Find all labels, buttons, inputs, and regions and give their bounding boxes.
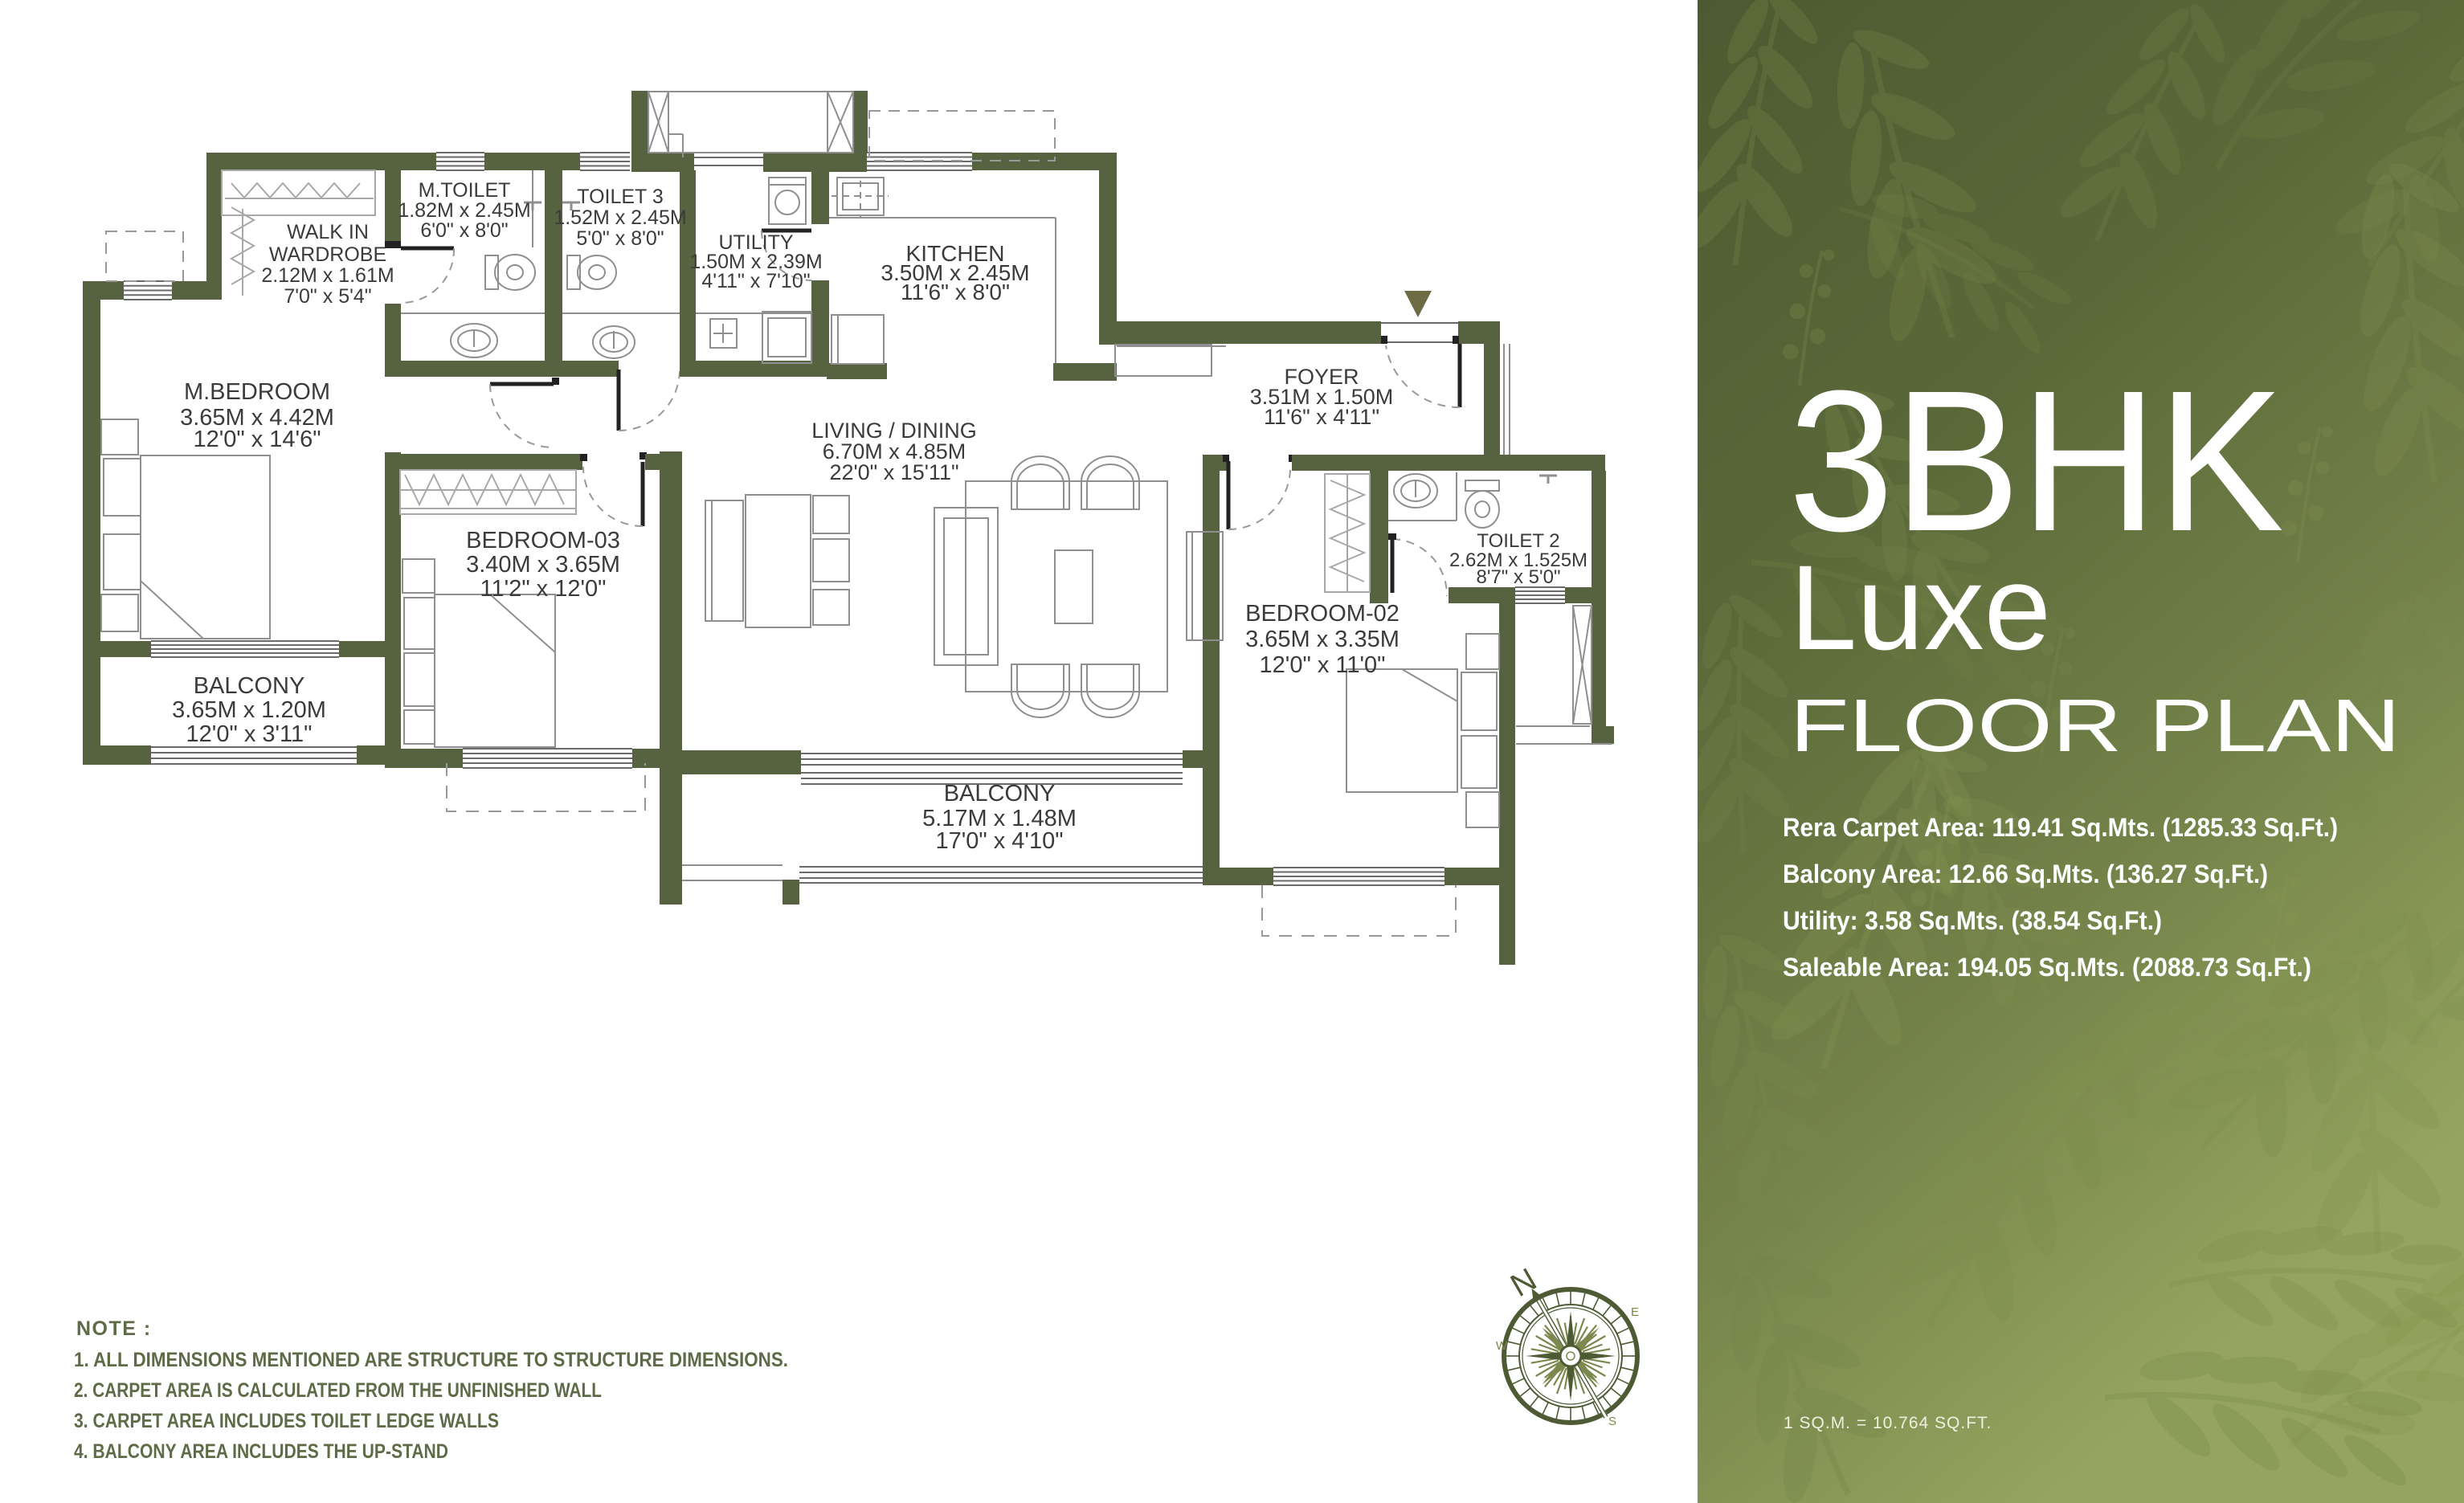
svg-text:NOTE :: NOTE : [76, 1317, 152, 1340]
svg-text:8'7" x 5'0": 8'7" x 5'0" [1477, 566, 1561, 588]
svg-text:WARDROBE: WARDROBE [269, 243, 386, 266]
svg-text:TOILET 2: TOILET 2 [1477, 530, 1559, 552]
svg-text:M.BEDROOM: M.BEDROOM [184, 379, 330, 405]
svg-text:17'0" x 4'10": 17'0" x 4'10" [935, 828, 1063, 854]
svg-text:WALK IN: WALK IN [287, 221, 369, 243]
svg-text:FLOOR PLAN: FLOOR PLAN [1790, 684, 2401, 767]
svg-text:12'0" x 14'6": 12'0" x 14'6" [193, 427, 321, 452]
svg-text:11'6" x 4'11": 11'6" x 4'11" [1264, 405, 1379, 429]
svg-text:TOILET 3: TOILET 3 [577, 186, 663, 208]
svg-text:3.65M x 3.35M: 3.65M x 3.35M [1245, 627, 1400, 652]
svg-text:M.TOILET: M.TOILET [419, 179, 511, 202]
svg-text:E: E [1631, 1305, 1639, 1319]
svg-text:W: W [1496, 1339, 1508, 1353]
svg-text:12'0" x 3'11": 12'0" x 3'11" [186, 721, 313, 747]
svg-text:3.65M x 1.20M: 3.65M x 1.20M [172, 697, 326, 723]
svg-text:1.52M x 2.45M: 1.52M x 2.45M [554, 206, 686, 229]
svg-text:Balcony Area: 12.66 Sq.Mts. (1: Balcony Area: 12.66 Sq.Mts. (136.27 Sq.F… [1783, 860, 2268, 888]
svg-text:1 SQ.M. = 10.764 SQ.FT.: 1 SQ.M. = 10.764 SQ.FT. [1784, 1414, 1992, 1432]
svg-text:3. CARPET AREA INCLUDES TOILET: 3. CARPET AREA INCLUDES TOILET LEDGE WAL… [74, 1410, 499, 1432]
svg-text:Utility: 3.58 Sq.Mts. (38.54 S: Utility: 3.58 Sq.Mts. (38.54 Sq.Ft.) [1783, 906, 2162, 935]
svg-text:1.82M x 2.45M: 1.82M x 2.45M [398, 199, 530, 222]
svg-text:6'0" x 8'0": 6'0" x 8'0" [420, 219, 508, 242]
svg-text:4'11" x 7'10": 4'11" x 7'10" [701, 270, 810, 292]
svg-text:1. ALL DIMENSIONS MENTIONED AR: 1. ALL DIMENSIONS MENTIONED ARE STRUCTUR… [74, 1349, 788, 1371]
svg-text:4. BALCONY AREA INCLUDES THE U: 4. BALCONY AREA INCLUDES THE UP-STAND [74, 1440, 448, 1463]
svg-text:S: S [1608, 1415, 1616, 1428]
svg-text:11'2" x 12'0": 11'2" x 12'0" [480, 576, 607, 602]
svg-text:11'6" x 8'0": 11'6" x 8'0" [901, 280, 1010, 304]
svg-text:2. CARPET AREA IS CALCULATED F: 2. CARPET AREA IS CALCULATED FROM THE UN… [74, 1379, 602, 1402]
svg-text:Rera Carpet Area: 119.41 Sq.Mt: Rera Carpet Area: 119.41 Sq.Mts. (1285.3… [1783, 813, 2338, 842]
svg-text:BEDROOM-02: BEDROOM-02 [1245, 601, 1400, 627]
svg-text:2.12M x 1.61M: 2.12M x 1.61M [261, 264, 394, 287]
svg-text:BALCONY: BALCONY [944, 781, 1056, 807]
svg-text:12'0" x 11'0": 12'0" x 11'0" [1260, 652, 1386, 678]
svg-text:22'0" x 15'11": 22'0" x 15'11" [829, 460, 958, 484]
svg-text:3.40M x 3.65M: 3.40M x 3.65M [466, 552, 620, 578]
svg-text:BALCONY: BALCONY [194, 673, 305, 699]
svg-text:Saleable Area: 194.05 Sq.Mts.: Saleable Area: 194.05 Sq.Mts. (2088.73 S… [1783, 953, 2311, 982]
svg-text:5'0" x 8'0": 5'0" x 8'0" [576, 227, 664, 250]
svg-text:BEDROOM-03: BEDROOM-03 [466, 528, 620, 553]
svg-text:7'0" x 5'4": 7'0" x 5'4" [284, 285, 371, 308]
svg-text:Luxe: Luxe [1790, 540, 2051, 675]
